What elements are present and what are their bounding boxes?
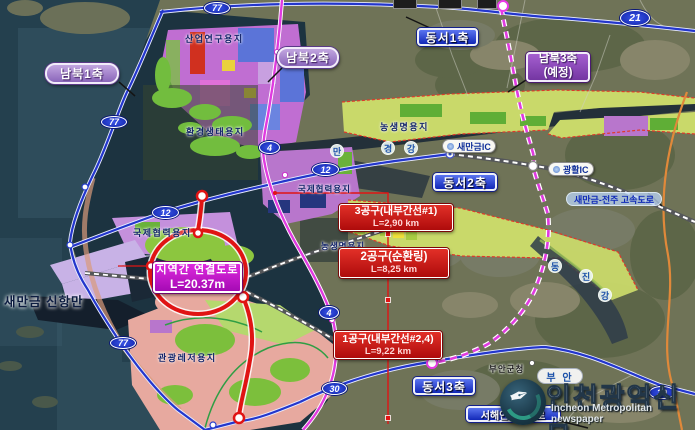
cutoff-label-box bbox=[438, 0, 462, 9]
axis-label-dongseo1: 동서1축 bbox=[417, 28, 478, 46]
route-21-marker: 21 bbox=[620, 10, 650, 26]
watermark-english: Incheon Metropolitan newspaper bbox=[551, 403, 695, 425]
project-box-title: 2공구(순환링) bbox=[361, 250, 428, 264]
mangyeong-river-label: 만 bbox=[330, 144, 344, 158]
regional-road-title: 지역간 연결도로 bbox=[157, 263, 239, 277]
regional-road-length: L=20.37m bbox=[170, 277, 225, 293]
project-box-title: 1공구(내부간선#2,4) bbox=[342, 333, 433, 346]
ic-dot-icon bbox=[447, 143, 454, 150]
route-77-marker: 77 bbox=[101, 116, 127, 128]
dongjin-river-label: 강 bbox=[598, 288, 612, 302]
saemangeum-ic-label: 새만금IC bbox=[442, 139, 496, 153]
area-label-intl-coop-west: 국제협력용지 bbox=[133, 226, 192, 239]
project-box-length: L=8,25 km bbox=[371, 264, 417, 276]
axis-label-nambuk3-line2: (예정) bbox=[544, 67, 573, 81]
dongjin-river-label: 동 bbox=[548, 259, 562, 273]
newspaper-logo: ✒ bbox=[500, 379, 546, 425]
project-box-title: 3공구(내부간선#1) bbox=[355, 205, 437, 218]
mangyeong-river-label: 강 bbox=[404, 141, 418, 155]
gwanghwal-ic-label: 광활IC bbox=[548, 162, 594, 176]
project-box-section1: 1공구(내부간선#2,4) L=9,22 km bbox=[334, 331, 442, 359]
project-box-section2: 2공구(순환링) L=8,25 km bbox=[339, 248, 449, 278]
dongjin-river-label: 진 bbox=[579, 269, 593, 283]
area-label-eco-environment: 환경생태용지 bbox=[186, 125, 245, 138]
ic-name: 새만금IC bbox=[457, 140, 491, 153]
ic-dot-icon bbox=[553, 166, 560, 173]
route-4-marker: 4 bbox=[259, 141, 280, 154]
buan-office-label: 부안군청 bbox=[489, 363, 524, 375]
ic-name: 광활IC bbox=[563, 163, 589, 176]
cutoff-label-box bbox=[393, 0, 417, 9]
area-label-industry-research: 산업연구용지 bbox=[185, 32, 244, 45]
route-77-marker: 77 bbox=[110, 337, 136, 349]
axis-label-nambuk2: 남북2축 bbox=[277, 47, 339, 68]
axis-label-dongseo3: 동서3축 bbox=[413, 377, 475, 395]
new-port-label: 새만금 신항만 bbox=[4, 291, 83, 310]
map-canvas: 남북1축 남북2축 남북3축 (예정) 동서1축 동서2축 동서3축 서해안고속… bbox=[0, 0, 695, 430]
project-box-length: L=2,90 km bbox=[373, 218, 419, 230]
area-label-intl-coop-east: 국제협력용지 bbox=[298, 183, 351, 195]
project-box-section3: 3공구(내부간선#1) L=2,90 km bbox=[339, 204, 453, 231]
cutoff-label-box bbox=[477, 0, 497, 9]
route-12-marker: 12 bbox=[312, 163, 339, 176]
route-77-marker: 77 bbox=[204, 2, 230, 14]
regional-road-box: 지역간 연결도로 L=20.37m bbox=[153, 262, 242, 293]
mangyeong-river-label: 경 bbox=[381, 141, 395, 155]
project-box-length: L=9,22 km bbox=[365, 346, 411, 358]
axis-label-nambuk3-line1: 남북3축 bbox=[539, 53, 577, 67]
area-label-tourism-leisure: 관광레저용지 bbox=[158, 351, 217, 364]
route-30-marker: 30 bbox=[322, 382, 347, 395]
axis-label-nambuk3: 남북3축 (예정) bbox=[526, 52, 590, 82]
axis-label-nambuk1: 남북1축 bbox=[45, 63, 119, 84]
route-12-marker: 12 bbox=[152, 206, 179, 219]
area-label-agro-bio-north: 농생명용지 bbox=[380, 120, 429, 133]
route-4-marker: 4 bbox=[319, 306, 339, 319]
expressway-label: 새만금-전주 고속도로 bbox=[566, 192, 662, 206]
axis-label-dongseo2: 동서2축 bbox=[433, 173, 497, 191]
